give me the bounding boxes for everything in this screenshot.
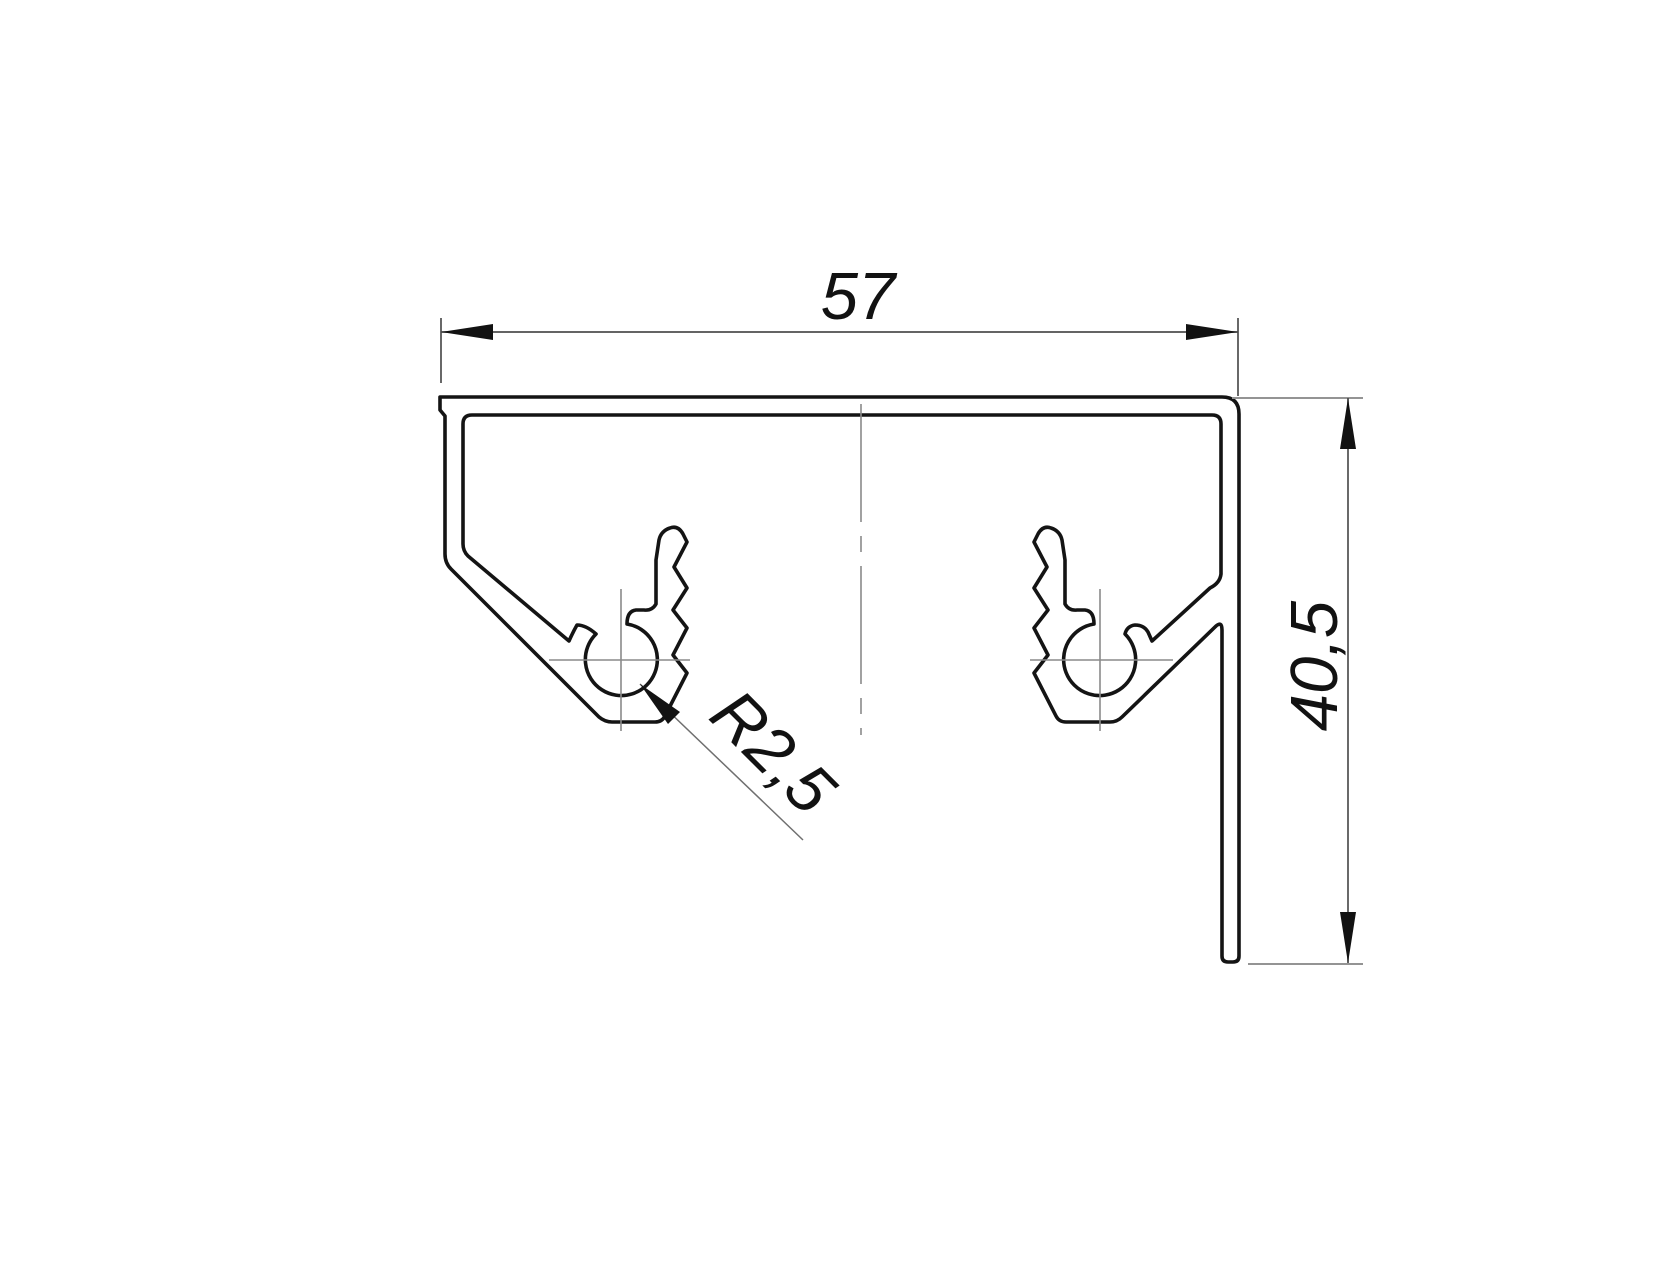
technical-drawing-canvas: 57 40,5 R2,5 [0,0,1680,1261]
radius-leader-arrow [640,684,680,724]
width-dimension-label: 57 [821,259,898,334]
height-dimension-label: 40,5 [1277,600,1352,731]
profile-outline [440,397,1239,962]
drawing-page: 57 40,5 R2,5 [0,0,1680,1261]
radius-dimension-label: R2,5 [696,676,850,830]
